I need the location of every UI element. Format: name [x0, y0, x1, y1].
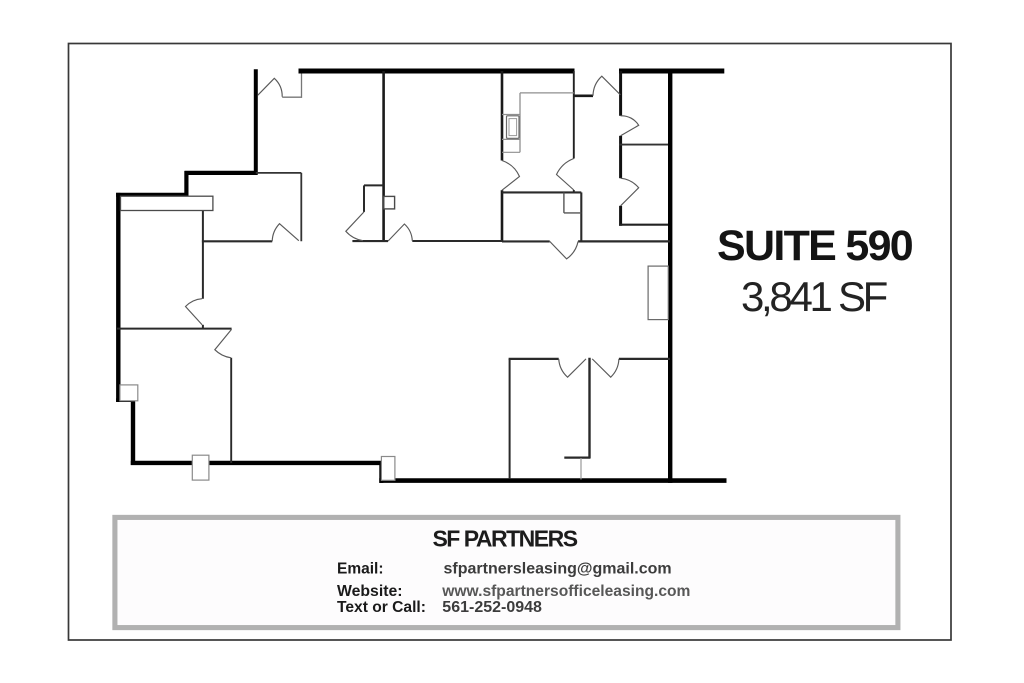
- svg-text:561-252-0948: 561-252-0948: [442, 599, 542, 616]
- svg-text:SUITE 590: SUITE 590: [717, 222, 913, 270]
- svg-text:Website:: Website:: [337, 583, 403, 600]
- svg-text:www.sfpartnersofficeleasing.co: www.sfpartnersofficeleasing.com: [441, 583, 690, 600]
- svg-text:Email:: Email:: [337, 561, 384, 578]
- svg-text:3,841 SF: 3,841 SF: [741, 273, 887, 320]
- svg-text:sfpartnersleasing@gmail.com: sfpartnersleasing@gmail.com: [444, 561, 672, 578]
- svg-text:SF PARTNERS: SF PARTNERS: [432, 525, 577, 551]
- svg-text:Text or Call:: Text or Call:: [337, 599, 426, 616]
